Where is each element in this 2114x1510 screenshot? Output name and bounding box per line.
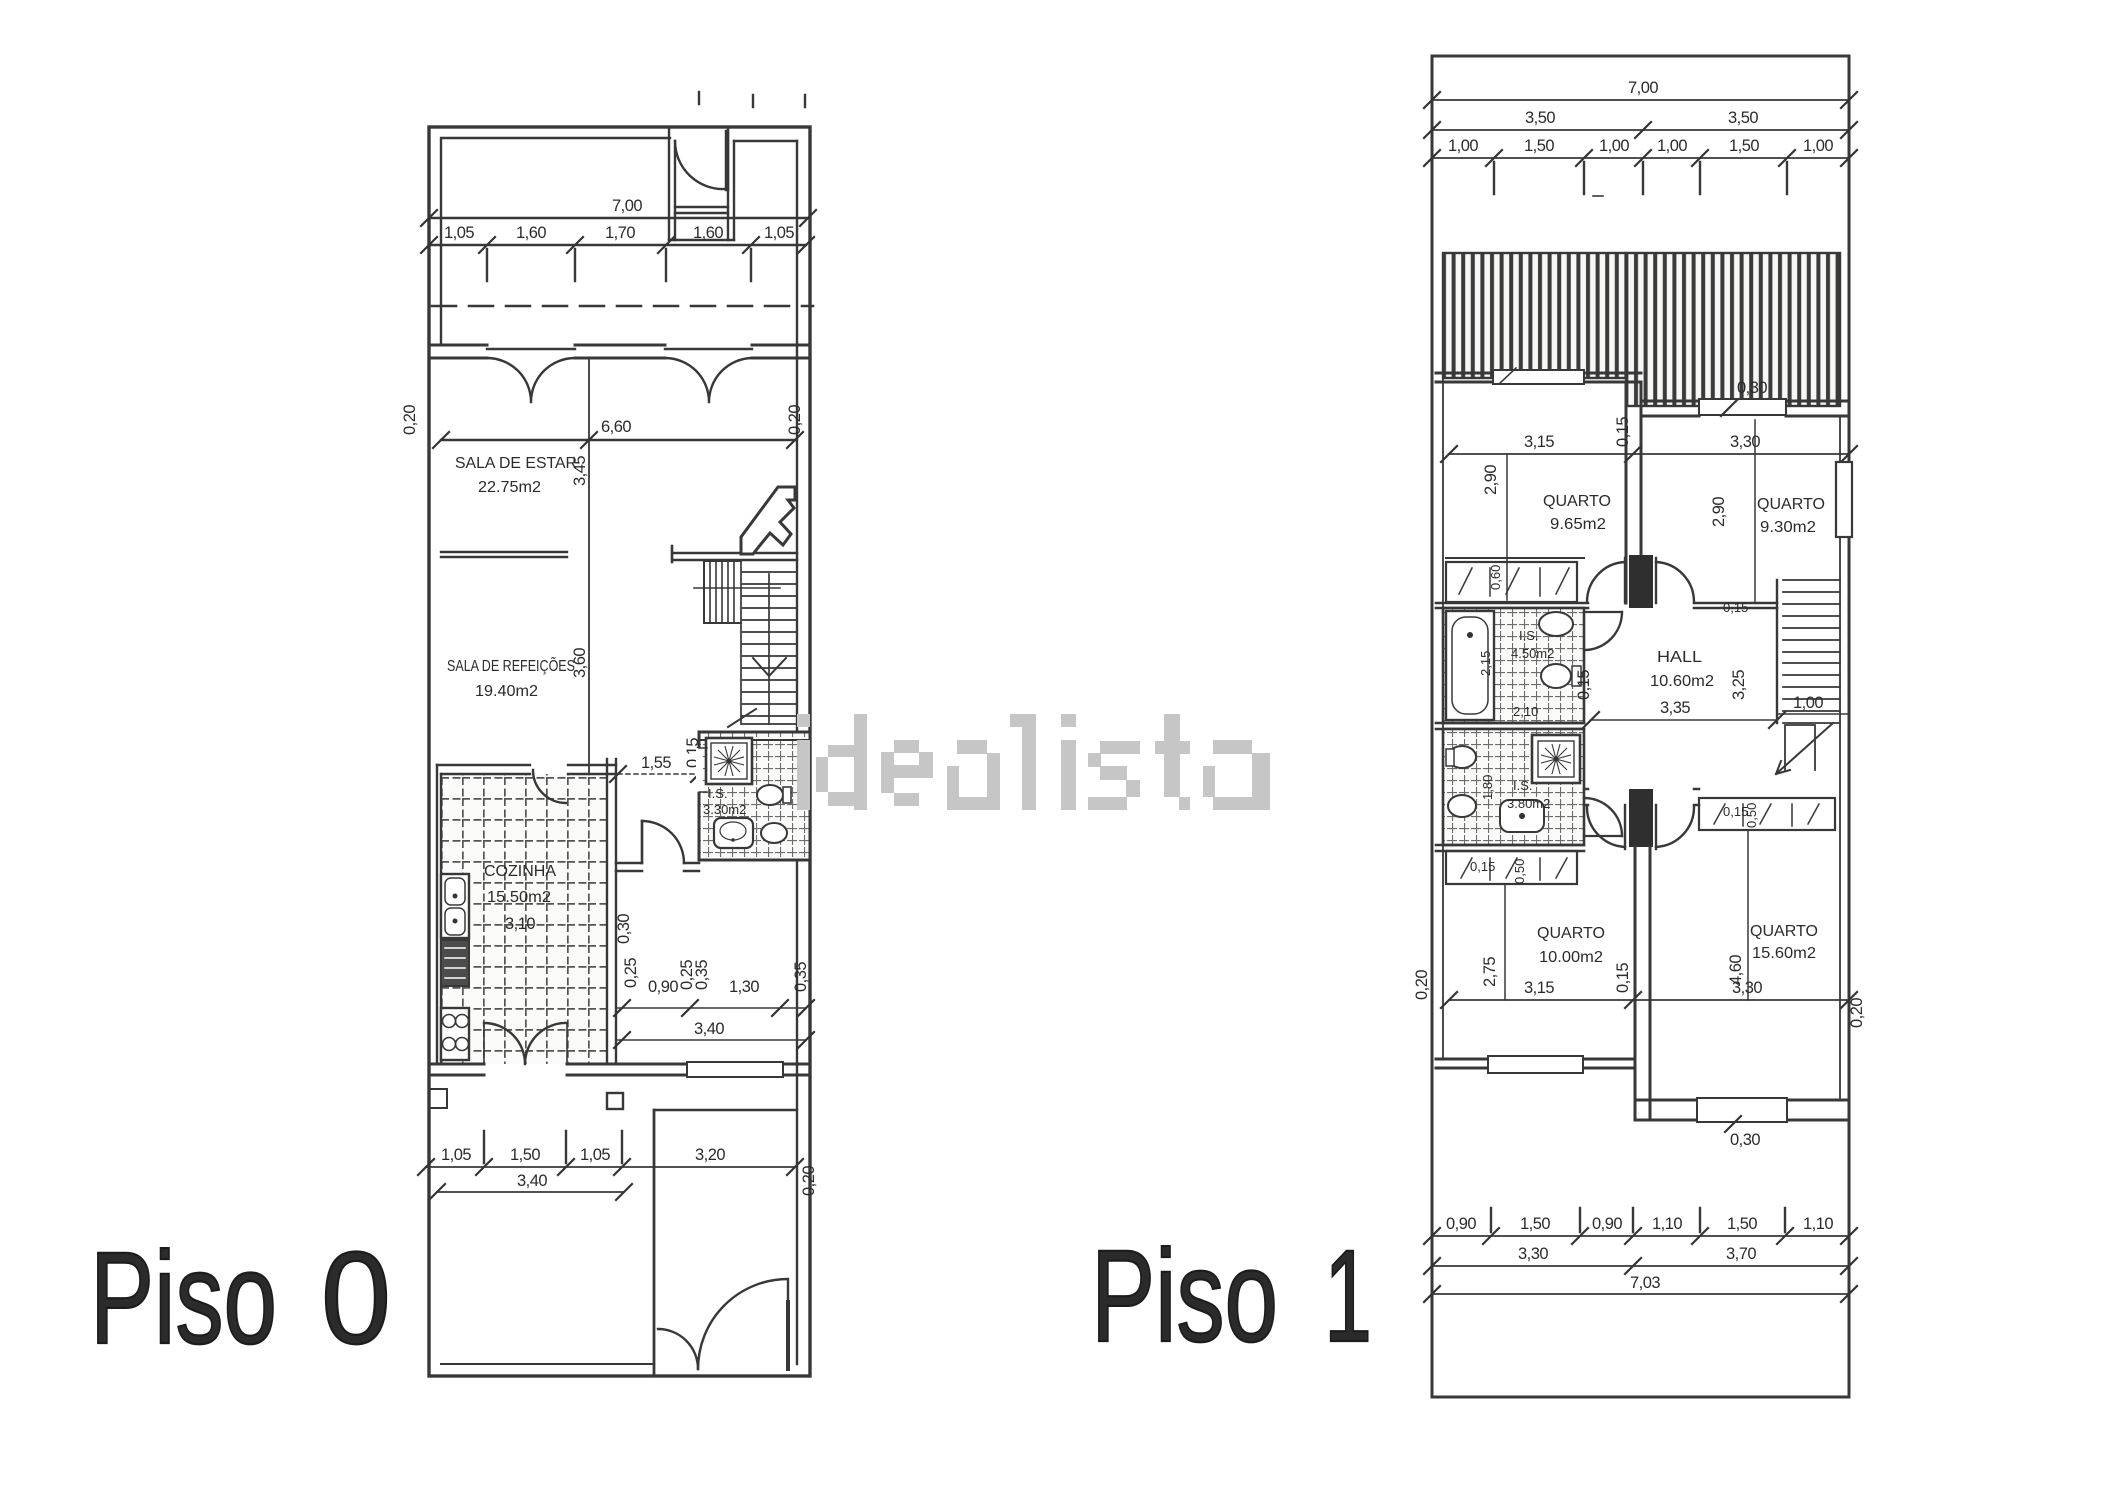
svg-text:SALA DE ESTAR: SALA DE ESTAR [455,455,577,472]
svg-text:3,15: 3,15 [1524,979,1554,997]
svg-text:0,35: 0,35 [693,960,711,990]
svg-text:1,50: 1,50 [1727,1215,1757,1233]
svg-text:0,90: 0,90 [1446,1215,1476,1233]
svg-text:QUARTO: QUARTO [1750,923,1818,940]
svg-text:0,15: 0,15 [1614,417,1632,447]
svg-text:2,75: 2,75 [1481,957,1499,987]
svg-text:10.60m2: 10.60m2 [1650,673,1714,690]
svg-text:1,10: 1,10 [1803,1215,1833,1233]
svg-text:0,20: 0,20 [1848,998,1866,1028]
svg-text:3,30: 3,30 [1730,433,1760,451]
svg-text:QUARTO: QUARTO [1757,496,1825,513]
svg-text:1,05: 1,05 [444,224,474,242]
svg-text:0,60: 0,60 [1488,565,1503,590]
svg-text:3,50: 3,50 [1525,109,1555,127]
svg-text:2,90: 2,90 [1482,465,1500,495]
svg-text:3,20: 3,20 [695,1146,725,1164]
svg-text:1,50: 1,50 [510,1146,540,1164]
svg-text:2,15: 2,15 [1478,651,1493,676]
svg-text:3.30m2: 3.30m2 [703,802,746,817]
svg-text:1,80: 1,80 [1480,775,1495,800]
svg-text:4.50m2: 4.50m2 [1511,646,1554,661]
svg-text:0,20: 0,20 [786,405,804,435]
svg-text:1,60: 1,60 [693,224,723,242]
svg-text:1: 1 [1324,1222,1372,1369]
svg-text:0,30: 0,30 [1730,1131,1760,1149]
svg-text:3,30: 3,30 [1518,1245,1548,1263]
svg-text:1,50: 1,50 [1520,1215,1550,1233]
svg-text:0,50: 0,50 [1512,859,1527,884]
svg-text:0,20: 0,20 [401,405,419,435]
svg-text:I.S.: I.S. [1513,778,1533,793]
svg-text:0,15: 0,15 [1614,963,1632,993]
svg-text:3,40: 3,40 [694,1020,724,1038]
svg-text:1,50: 1,50 [1524,137,1554,155]
svg-text:3,10: 3,10 [505,915,535,933]
svg-text:1,55: 1,55 [641,754,671,772]
svg-text:9.30m2: 9.30m2 [1760,519,1816,536]
svg-text:15.50m2: 15.50m2 [487,889,551,906]
svg-text:3,70: 3,70 [1726,1245,1756,1263]
svg-text:1,00: 1,00 [1793,694,1823,712]
svg-text:0,15: 0,15 [1723,600,1748,615]
svg-text:QUARTO: QUARTO [1537,925,1605,942]
svg-text:2,10: 2,10 [1513,704,1538,719]
svg-text:I.S.: I.S. [1519,628,1539,643]
svg-text:0,20: 0,20 [1413,970,1431,1000]
svg-text:0,20: 0,20 [800,1166,818,1196]
svg-text:0,50: 0,50 [1744,803,1759,828]
svg-text:1,50: 1,50 [1729,137,1759,155]
svg-text:1,05: 1,05 [764,224,794,242]
svg-text:9.65m2: 9.65m2 [1550,516,1606,533]
svg-text:1,00: 1,00 [1448,137,1478,155]
svg-text:0,30: 0,30 [615,914,633,944]
svg-text:COZINHA: COZINHA [484,863,556,880]
svg-text:3,50: 3,50 [1728,109,1758,127]
svg-text:SALA DE REFEIÇÕES: SALA DE REFEIÇÕES [447,655,575,675]
svg-text:I.S.: I.S. [708,786,728,801]
svg-text:7,03: 7,03 [1630,1274,1660,1292]
svg-text:0,90: 0,90 [648,978,678,996]
svg-text:QUARTO: QUARTO [1543,493,1611,510]
svg-text:1,05: 1,05 [580,1146,610,1164]
svg-text:3,30: 3,30 [1732,979,1762,997]
svg-text:3,35: 3,35 [1660,699,1690,717]
svg-text:1,00: 1,00 [1599,137,1629,155]
svg-text:6,60: 6,60 [601,418,631,436]
svg-text:3,25: 3,25 [1730,670,1748,700]
svg-text:7,00: 7,00 [1628,79,1658,97]
svg-text:2,90: 2,90 [1710,497,1728,527]
svg-text:1,60: 1,60 [516,224,546,242]
svg-text:0,90: 0,90 [1592,1215,1622,1233]
svg-text:22.75m2: 22.75m2 [478,479,541,496]
svg-text:0: 0 [321,1224,391,1371]
svg-text:0,35: 0,35 [792,962,810,992]
svg-text:Piso: Piso [1091,1222,1278,1369]
svg-text:1,10: 1,10 [1652,1215,1682,1233]
svg-text:1,00: 1,00 [1803,137,1833,155]
svg-text:0,30: 0,30 [1737,379,1767,397]
svg-text:19.40m2: 19.40m2 [475,683,538,700]
svg-text:0,15: 0,15 [1575,670,1593,700]
svg-text:3.80m2: 3.80m2 [1507,796,1550,811]
svg-text:15.60m2: 15.60m2 [1752,945,1816,962]
svg-text:3,15: 3,15 [1524,433,1554,451]
svg-text:HALL: HALL [1657,649,1702,666]
svg-text:7,00: 7,00 [612,197,642,215]
svg-text:1,05: 1,05 [441,1146,471,1164]
svg-text:3,40: 3,40 [517,1172,547,1190]
svg-text:0,25: 0,25 [622,958,640,988]
svg-text:0,15: 0,15 [1470,859,1495,874]
svg-text:Piso: Piso [90,1224,277,1371]
svg-text:10.00m2: 10.00m2 [1539,949,1603,966]
svg-text:1,00: 1,00 [1657,137,1687,155]
svg-text:1,70: 1,70 [605,224,635,242]
svg-text:1,30: 1,30 [729,978,759,996]
